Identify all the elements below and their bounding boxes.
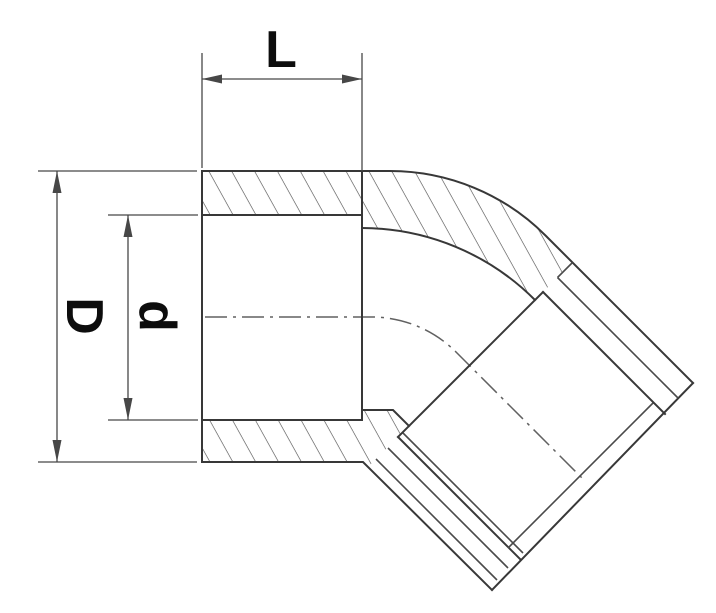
arrowhead-down	[124, 398, 133, 420]
lower-wall-hatch	[202, 410, 409, 467]
arrowhead-down	[53, 440, 62, 462]
angled-bore-bottom	[398, 437, 520, 559]
upper-body-line	[558, 278, 679, 399]
upper-wall-hatch	[202, 171, 573, 300]
lower-body-line-3	[403, 433, 523, 553]
outer-bottom-surface	[202, 462, 492, 590]
arrowhead-right	[342, 75, 362, 84]
dimension-d-label: d	[128, 300, 186, 332]
arrowhead-up	[53, 171, 62, 193]
arrowhead-left	[202, 75, 222, 84]
angled-bore-top	[543, 292, 665, 414]
angled-end-face	[492, 383, 693, 590]
sleeve-detail-lines	[376, 263, 678, 581]
dimension-L-label: L	[265, 21, 297, 79]
arrowhead-up	[124, 215, 133, 237]
elbow-section-drawing: L D d	[0, 0, 716, 613]
angled-socket-shoulder	[398, 292, 543, 437]
lower-body-line-1	[376, 459, 497, 580]
lower-body-line-2	[388, 448, 508, 568]
dimension-D-label: D	[55, 297, 113, 335]
technical-drawing-canvas: L D d	[0, 0, 716, 613]
